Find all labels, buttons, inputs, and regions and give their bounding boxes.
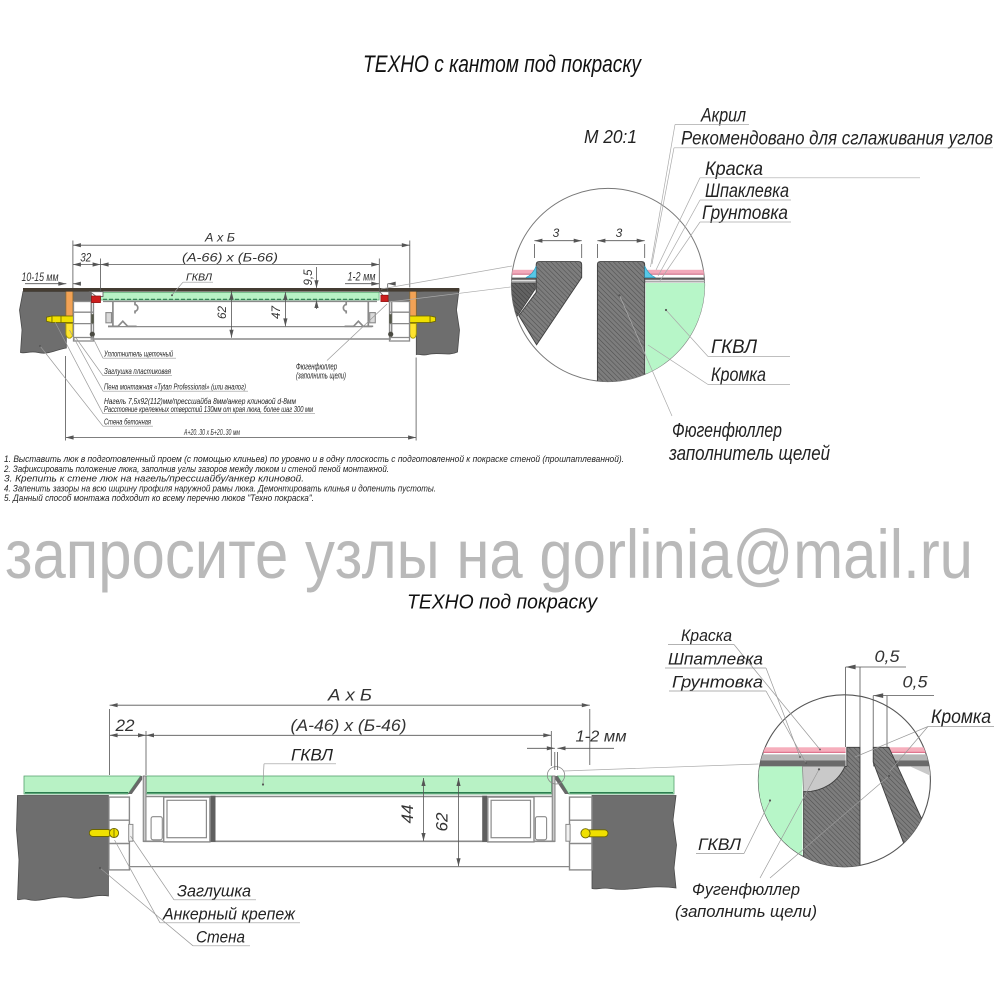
svg-text:3. Крепить к стене люк на наге: 3. Крепить к стене люк на нагель/прессша… [4,474,304,484]
svg-text:Акрил: Акрил [700,106,746,127]
svg-text:Заглушка пластиковая: Заглушка пластиковая [104,367,172,376]
svg-text:Расстояние крепежных отверстий: Расстояние крепежных отверстий 130мм от … [104,405,313,414]
svg-text:Анкерный крепеж: Анкерный крепеж [162,905,296,924]
svg-text:Стена: Стена [196,928,245,947]
svg-text:заполнитель щелей: заполнитель щелей [668,443,830,465]
svg-text:ГКВЛ: ГКВЛ [186,272,213,284]
svg-text:1. Выставить люк в подготовлен: 1. Выставить люк в подготовленный проем … [4,454,624,464]
svg-text:ТЕХНО с кантом под покраску: ТЕХНО с кантом под покраску [363,51,643,78]
svg-text:32: 32 [80,250,91,264]
svg-text:5. Данный способ монтажа подхо: 5. Данный способ монтажа подходит ко все… [4,493,314,503]
svg-text:(заполнить щели): (заполнить щели) [296,371,346,382]
svg-text:0,5: 0,5 [875,647,901,666]
svg-text:Заглушка: Заглушка [177,882,251,901]
svg-text:(А-46) х (Б-46): (А-46) х (Б-46) [291,716,407,735]
svg-text:1-2 мм: 1-2 мм [576,729,627,746]
svg-text:ТЕХНО под покраску: ТЕХНО под покраску [407,591,599,614]
svg-text:запросите узлы на gorlinia@mai: запросите узлы на gorlinia@mail.ru [5,516,973,593]
svg-text:Пена монтажная «Tytan Professi: Пена монтажная «Tytan Professional» (или… [104,383,246,392]
svg-text:62: 62 [433,812,452,832]
svg-text:А х Б: А х Б [204,231,235,245]
svg-text:3: 3 [616,226,623,240]
svg-text:44: 44 [398,805,417,824]
svg-text:Стена бетонная: Стена бетонная [104,418,152,427]
svg-text:М 20:1: М 20:1 [584,127,637,147]
svg-text:62: 62 [215,306,229,319]
svg-text:Фугенфюллер: Фугенфюллер [692,880,800,899]
svg-text:1-2 мм: 1-2 мм [348,272,376,284]
svg-text:ГКВЛ: ГКВЛ [711,337,758,358]
svg-text:Кромка: Кромка [711,365,766,386]
svg-text:(А-66) х (Б-66): (А-66) х (Б-66) [182,250,278,264]
svg-text:3: 3 [553,226,560,240]
svg-text:А х Б: А х Б [327,686,372,705]
svg-text:9,5: 9,5 [303,269,315,286]
svg-text:10-15 мм: 10-15 мм [22,272,59,284]
svg-text:(заполнить щели): (заполнить щели) [675,902,817,921]
svg-text:Уплотнитель щеточный: Уплотнитель щеточный [103,350,173,359]
svg-text:Грунтовка: Грунтовка [702,203,788,224]
svg-text:Грунтовка: Грунтовка [672,673,763,692]
svg-text:Краска: Краска [681,626,732,645]
svg-text:22: 22 [114,716,135,735]
svg-text:0,5: 0,5 [903,673,929,692]
svg-text:ГКВЛ: ГКВЛ [698,835,741,854]
svg-text:Кромка: Кромка [931,707,991,728]
svg-text:ГКВЛ: ГКВЛ [291,746,333,765]
svg-text:Шпатлевка: Шпатлевка [668,650,763,669]
svg-text:47: 47 [269,305,283,319]
svg-text:Краска: Краска [705,159,763,180]
svg-text:Рекомендовано для сглаживания: Рекомендовано для сглаживания углов [681,129,993,150]
svg-text:А+20..30 х Б+20..30 мм: А+20..30 х Б+20..30 мм [183,428,240,437]
svg-text:Фюгенфюллер: Фюгенфюллер [672,420,782,442]
svg-text:4. Запенить зазоры на всю шири: 4. Запенить зазоры на всю ширину профиля… [4,483,436,493]
svg-text:2. Зафиксировать положение люк: 2. Зафиксировать положение люка, заполни… [3,464,389,474]
svg-text:Шпаклевка: Шпаклевка [705,181,789,202]
